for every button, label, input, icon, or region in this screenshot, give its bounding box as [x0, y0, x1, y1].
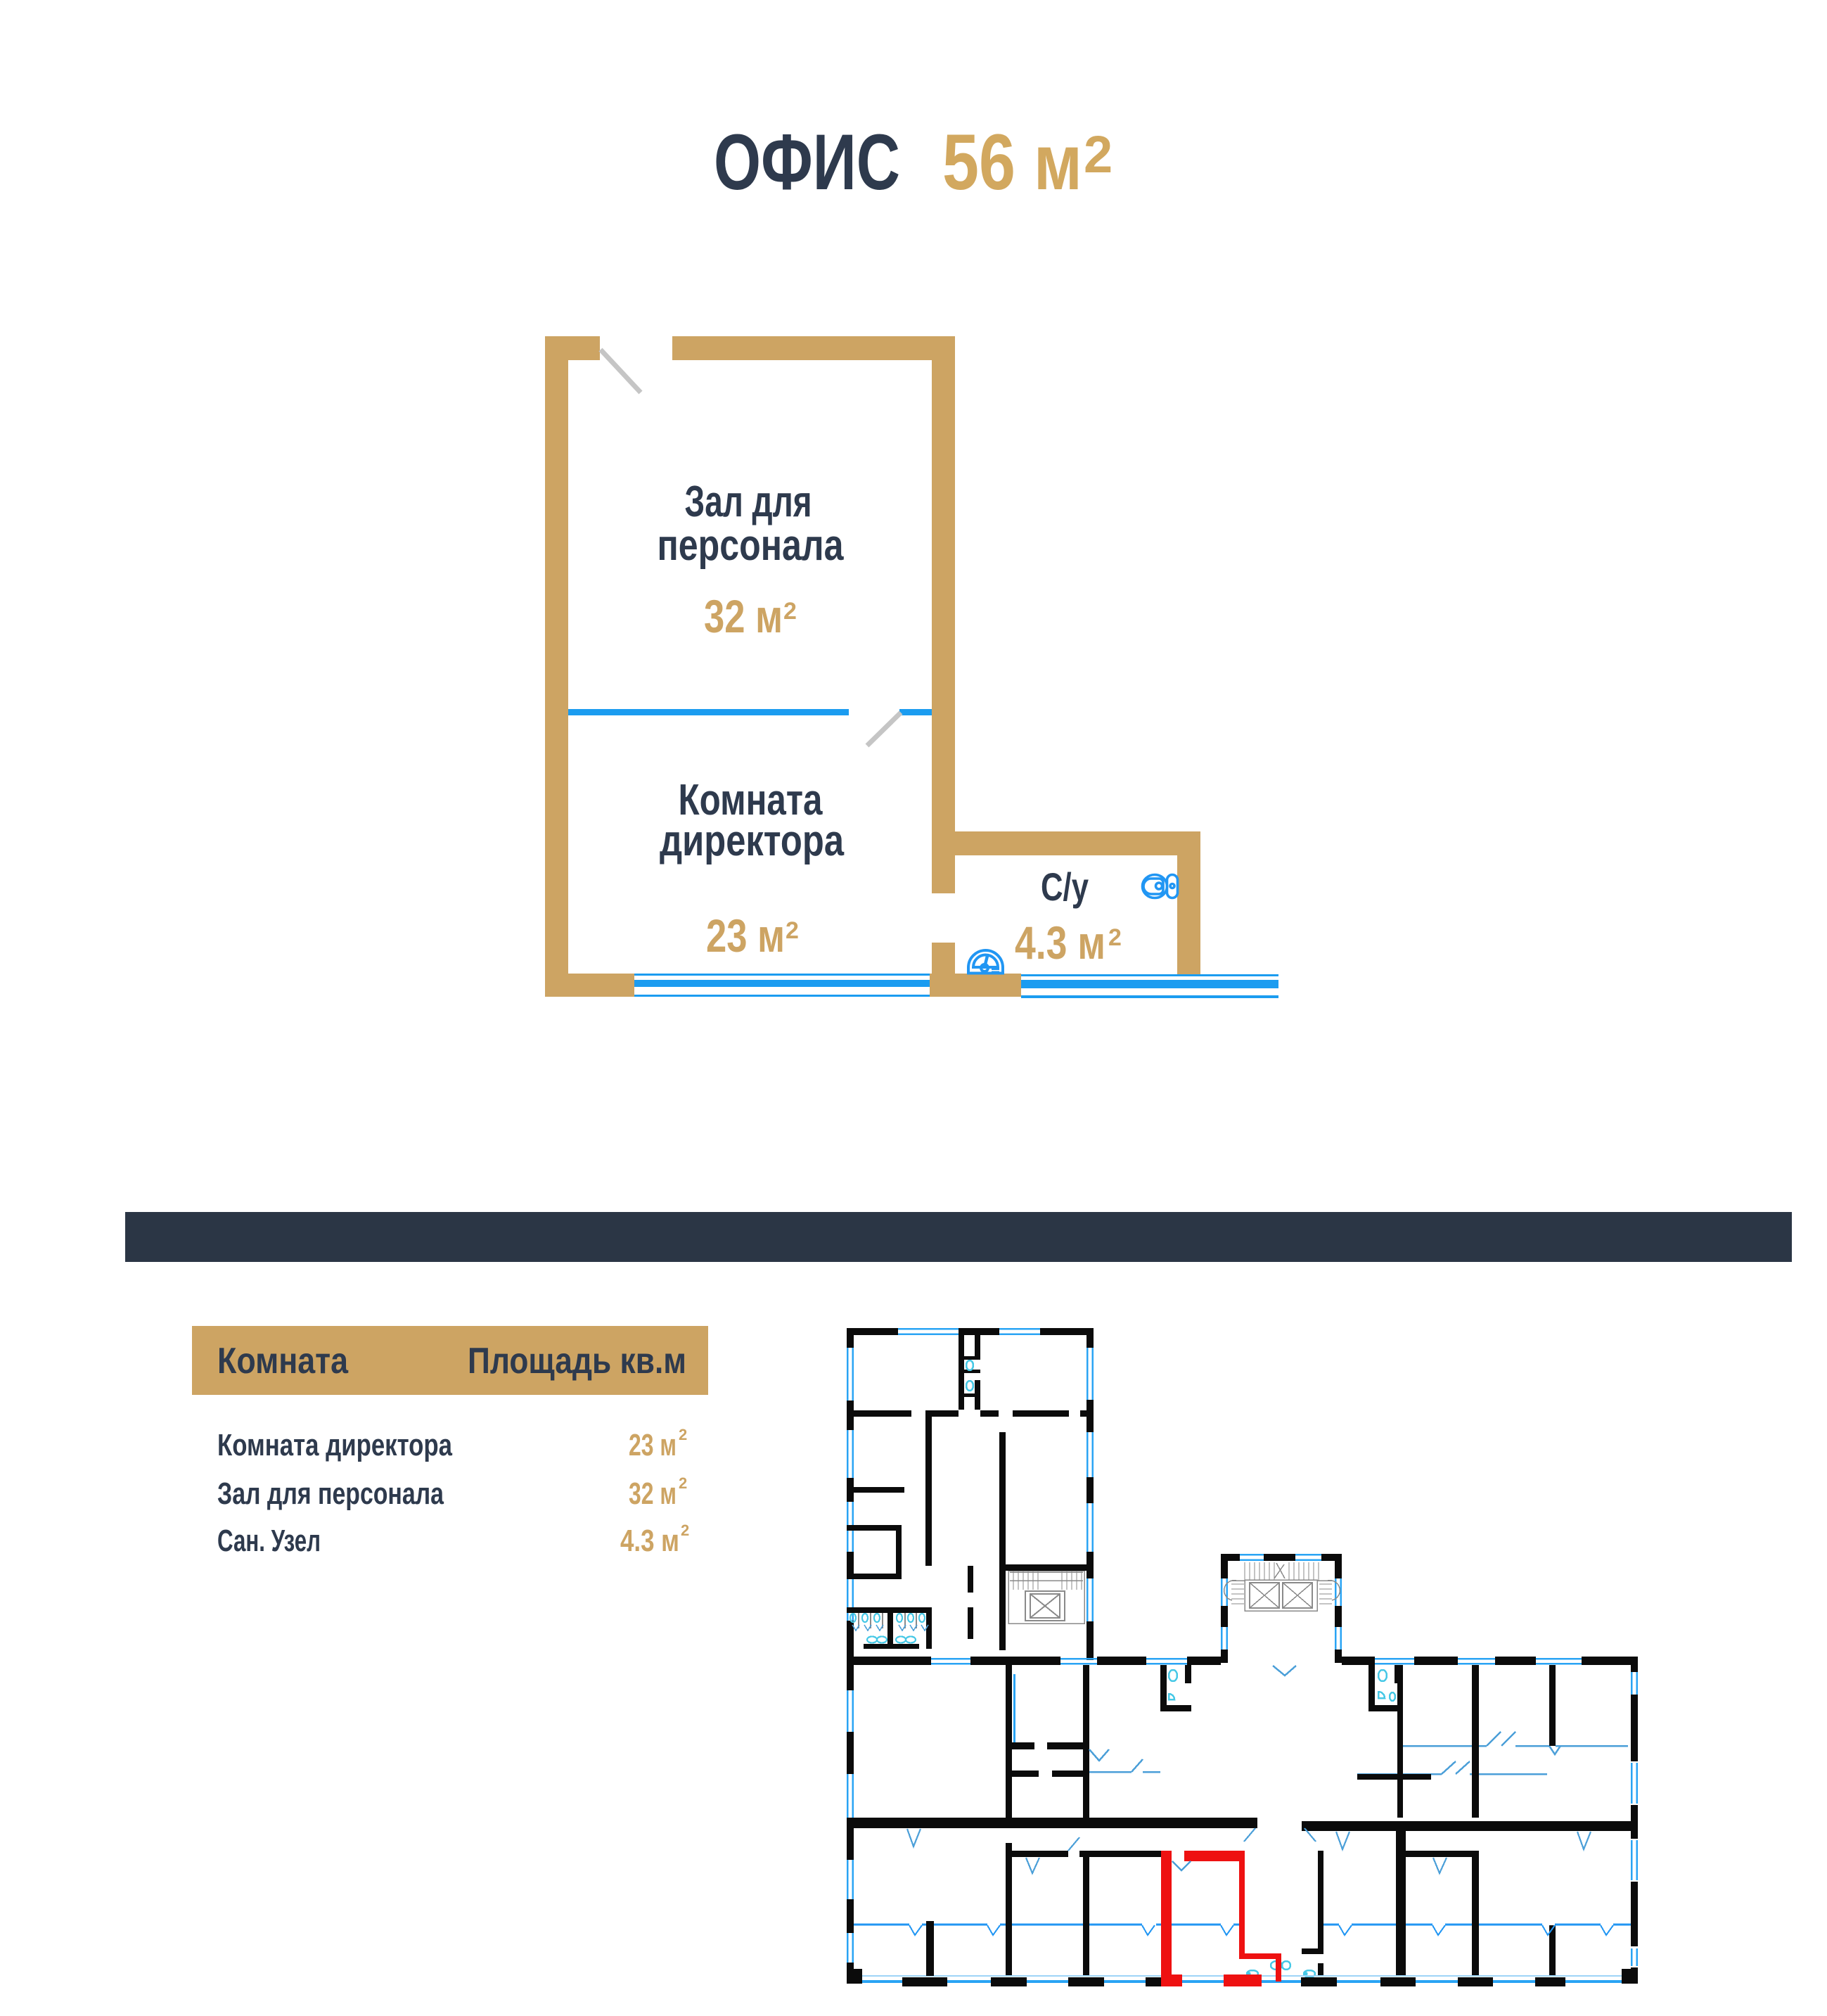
- svg-text:4.3 м: 4.3 м: [620, 1524, 679, 1558]
- svg-text:56 м: 56 м: [942, 118, 1082, 206]
- svg-text:2: 2: [679, 1426, 687, 1443]
- svg-text:32 м: 32 м: [629, 1476, 677, 1511]
- svg-text:С/у: С/у: [1041, 865, 1089, 909]
- svg-text:Сан. Узел: Сан. Узел: [217, 1524, 321, 1558]
- svg-text:ОФИС: ОФИС: [714, 118, 900, 206]
- svg-text:Зал для персонала: Зал для персонала: [217, 1476, 444, 1511]
- svg-text:23 м: 23 м: [629, 1428, 677, 1462]
- svg-text:2: 2: [786, 917, 799, 944]
- svg-text:2: 2: [1108, 924, 1122, 951]
- svg-text:4.3 м: 4.3 м: [1015, 917, 1105, 969]
- svg-text:23 м: 23 м: [706, 910, 785, 962]
- svg-text:2: 2: [681, 1521, 689, 1539]
- svg-text:Площадь кв.м: Площадь кв.м: [468, 1341, 686, 1382]
- svg-text:персонала: персонала: [658, 521, 844, 570]
- svg-text:Комната: Комната: [217, 1341, 349, 1382]
- svg-text:2: 2: [1084, 125, 1113, 184]
- svg-text:директора: директора: [660, 817, 844, 865]
- svg-text:2: 2: [783, 598, 797, 625]
- svg-text:2: 2: [679, 1474, 687, 1492]
- svg-text:32 м: 32 м: [704, 590, 783, 642]
- svg-text:Зал для: Зал для: [685, 478, 812, 526]
- svg-text:Комната директора: Комната директора: [217, 1428, 452, 1462]
